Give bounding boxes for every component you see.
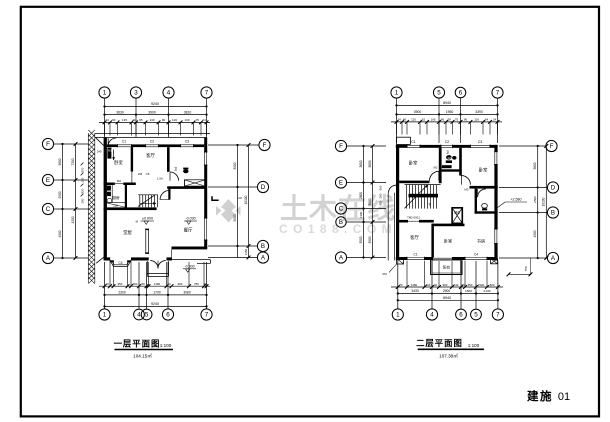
- svg-text:3900: 3900: [368, 198, 372, 205]
- svg-text:24: 24: [132, 118, 136, 122]
- svg-text:1: 1: [395, 90, 399, 97]
- svg-text:75: 75: [196, 118, 200, 122]
- svg-text:106: 106: [431, 118, 436, 122]
- svg-text:3080: 3080: [183, 291, 191, 295]
- svg-text:3390: 3390: [475, 110, 483, 114]
- svg-text:F: F: [46, 141, 50, 148]
- svg-text:F: F: [550, 143, 554, 150]
- svg-text:3810: 3810: [184, 110, 192, 114]
- svg-text:24: 24: [106, 118, 110, 122]
- svg-text:1: 1: [103, 312, 107, 319]
- svg-text:130: 130: [149, 118, 154, 122]
- svg-text:堂屋: 堂屋: [123, 229, 132, 236]
- svg-text:640: 640: [454, 283, 459, 287]
- svg-text:5: 5: [437, 90, 441, 97]
- svg-text:24: 24: [398, 118, 402, 122]
- svg-text:2300: 2300: [118, 291, 126, 295]
- svg-text:1300: 1300: [359, 211, 363, 218]
- svg-text:280: 280: [81, 198, 85, 203]
- svg-text:4: 4: [137, 312, 141, 319]
- svg-text:4: 4: [430, 312, 434, 319]
- svg-text:90: 90: [112, 118, 116, 122]
- svg-text:5: 5: [474, 312, 478, 319]
- svg-text:-0.030: -0.030: [185, 217, 195, 221]
- svg-text:M2: M2: [434, 166, 438, 170]
- svg-text:7200: 7200: [71, 158, 75, 165]
- svg-text:280: 280: [81, 177, 85, 182]
- svg-text:280: 280: [379, 193, 383, 198]
- svg-text:4900: 4900: [58, 230, 62, 237]
- svg-text:90: 90: [464, 118, 468, 122]
- svg-text:B: B: [551, 210, 555, 217]
- svg-text:70: 70: [455, 118, 459, 122]
- svg-text:烟道: 烟道: [454, 211, 460, 215]
- svg-text:460: 460: [426, 283, 431, 287]
- svg-text:C1: C1: [411, 140, 415, 144]
- svg-text:24: 24: [202, 118, 206, 122]
- svg-text:卧室: 卧室: [114, 159, 123, 166]
- svg-text:E: E: [339, 180, 343, 187]
- svg-text:900: 900: [443, 283, 448, 287]
- svg-text:2900: 2900: [443, 289, 451, 293]
- svg-text:1.5A: 1.5A: [157, 176, 163, 180]
- svg-text:餐厅: 餐厅: [184, 227, 193, 234]
- svg-text:3900: 3900: [414, 110, 422, 114]
- svg-text:750: 750: [524, 266, 528, 271]
- svg-text:95: 95: [139, 118, 143, 122]
- svg-text:26: 26: [461, 283, 465, 287]
- svg-text:阳台: 阳台: [443, 265, 451, 270]
- svg-text:3600: 3600: [359, 160, 363, 167]
- svg-text:M3: M3: [465, 188, 469, 192]
- svg-text:9240: 9240: [151, 302, 159, 306]
- svg-text:C2: C2: [445, 140, 449, 144]
- svg-text:3: 3: [134, 90, 138, 97]
- svg-text:3600: 3600: [368, 160, 372, 167]
- svg-text:750: 750: [194, 282, 199, 286]
- svg-text:F: F: [339, 143, 343, 150]
- svg-text:650: 650: [468, 283, 473, 287]
- svg-text:900: 900: [379, 185, 383, 190]
- svg-text:C8: C8: [238, 196, 242, 200]
- svg-text:1150: 1150: [244, 248, 248, 255]
- svg-text:62: 62: [422, 118, 426, 122]
- svg-text:M2: M2: [117, 179, 121, 183]
- svg-text:C1: C1: [122, 140, 126, 144]
- svg-text:2M: 2M: [382, 272, 387, 276]
- svg-text:1:100: 1:100: [468, 343, 480, 348]
- svg-text:M1: M1: [108, 149, 112, 153]
- svg-text:一层平面图: 一层平面图: [114, 338, 161, 348]
- svg-text:B: B: [339, 219, 343, 226]
- svg-text:卧室: 卧室: [409, 160, 418, 167]
- svg-text:书房: 书房: [477, 238, 485, 245]
- svg-text:7: 7: [205, 312, 209, 319]
- svg-text:9240: 9240: [151, 102, 159, 106]
- svg-text:90: 90: [162, 118, 166, 122]
- svg-text:66: 66: [441, 118, 445, 122]
- svg-text:3630: 3630: [116, 110, 124, 114]
- svg-text:10100: 10100: [542, 197, 546, 206]
- svg-text:C: C: [46, 206, 51, 213]
- svg-text:4: 4: [167, 90, 171, 97]
- svg-text:6: 6: [459, 90, 463, 97]
- svg-text:C4: C4: [118, 261, 122, 265]
- svg-text:70: 70: [106, 282, 110, 286]
- svg-text:64: 64: [485, 118, 489, 122]
- svg-text:卧室: 卧室: [444, 238, 452, 245]
- svg-text:6: 6: [166, 312, 170, 319]
- svg-text:C1: C1: [413, 252, 417, 256]
- svg-text:C4: C4: [474, 252, 478, 256]
- svg-text:+2.580: +2.580: [510, 198, 521, 202]
- svg-text:3W: 3W: [447, 156, 452, 160]
- svg-text:C: C: [339, 206, 344, 213]
- svg-text:40: 40: [434, 283, 438, 287]
- svg-text:3430: 3430: [411, 289, 419, 293]
- svg-text:2900: 2900: [58, 191, 62, 198]
- svg-text:7: 7: [496, 312, 500, 319]
- svg-text:C5: C5: [146, 172, 150, 176]
- svg-text:950: 950: [81, 167, 85, 172]
- svg-text:950: 950: [81, 188, 85, 193]
- svg-text:客厅: 客厅: [146, 152, 155, 159]
- svg-text:24: 24: [493, 118, 497, 122]
- svg-text:8940: 8940: [443, 101, 451, 105]
- svg-text:TM2-0921: TM2-0921: [407, 216, 420, 220]
- svg-text:C2: C2: [150, 140, 154, 144]
- svg-text:1: 1: [396, 312, 400, 319]
- svg-text:E: E: [46, 177, 50, 184]
- svg-text:厨房: 厨房: [112, 195, 120, 200]
- svg-text:104.15㎡: 104.15㎡: [133, 353, 152, 359]
- svg-text:120: 120: [172, 118, 177, 122]
- svg-text:建施: 建施: [527, 389, 553, 403]
- svg-text:3500: 3500: [359, 236, 363, 243]
- svg-text:3900: 3900: [148, 110, 156, 114]
- svg-text:B: B: [261, 243, 265, 250]
- svg-text:5900: 5900: [233, 214, 237, 221]
- svg-text:卧室: 卧室: [479, 167, 488, 174]
- svg-text:240: 240: [97, 150, 102, 154]
- svg-text:1: 1: [103, 90, 107, 97]
- svg-text:7: 7: [496, 90, 500, 97]
- svg-text:3600: 3600: [533, 162, 537, 169]
- svg-text:4500: 4500: [533, 230, 537, 237]
- svg-text:C3: C3: [478, 140, 482, 144]
- svg-text:二层平面图: 二层平面图: [416, 338, 463, 348]
- svg-text:46: 46: [403, 118, 407, 122]
- svg-text:950: 950: [379, 200, 383, 205]
- svg-text:1180: 1180: [411, 283, 418, 287]
- svg-text:80: 80: [141, 282, 145, 286]
- svg-text:2500: 2500: [533, 196, 537, 203]
- svg-text:2M: 2M: [138, 172, 143, 176]
- svg-text:10100: 10100: [244, 195, 248, 204]
- svg-text:F: F: [263, 142, 267, 149]
- svg-text:130: 130: [184, 118, 189, 122]
- svg-text:1500: 1500: [465, 289, 472, 293]
- svg-text:1950: 1950: [446, 110, 454, 114]
- svg-text:950: 950: [118, 282, 123, 286]
- svg-text:1:100: 1:100: [160, 343, 172, 348]
- svg-text:D: D: [551, 185, 556, 192]
- svg-text:1700: 1700: [153, 291, 161, 295]
- svg-text:3600: 3600: [58, 158, 62, 165]
- svg-text:900: 900: [178, 282, 183, 286]
- svg-text:7: 7: [205, 90, 209, 97]
- svg-text:260: 260: [133, 282, 138, 286]
- svg-text:120: 120: [411, 118, 416, 122]
- svg-text:±0.000: ±0.000: [142, 217, 153, 221]
- svg-text:C3: C3: [185, 140, 189, 144]
- svg-text:2600: 2600: [359, 192, 363, 199]
- svg-text:58: 58: [448, 118, 452, 122]
- svg-text:卫: 卫: [174, 167, 178, 171]
- svg-text:150: 150: [113, 203, 118, 207]
- svg-text:70: 70: [399, 283, 403, 287]
- svg-text:820: 820: [490, 283, 495, 287]
- svg-text:下: 下: [428, 203, 431, 207]
- svg-text:116: 116: [474, 118, 479, 122]
- svg-text:客厅: 客厅: [410, 234, 419, 241]
- svg-text:4200: 4200: [71, 216, 75, 223]
- svg-text:107.38㎡: 107.38㎡: [439, 353, 458, 359]
- svg-text:D: D: [261, 184, 266, 191]
- svg-text:5: 5: [145, 312, 149, 319]
- svg-text:-0.300: -0.300: [184, 264, 194, 268]
- svg-text:3900: 3900: [233, 162, 237, 169]
- svg-text:135: 135: [122, 118, 127, 122]
- svg-text:3500: 3500: [368, 236, 372, 243]
- svg-text:2130: 2130: [484, 289, 491, 293]
- svg-text:01: 01: [558, 391, 570, 403]
- svg-text:8940: 8940: [443, 296, 451, 300]
- svg-text:1180: 1180: [154, 282, 161, 286]
- svg-text:6: 6: [459, 312, 463, 319]
- svg-text:1500: 1500: [478, 283, 485, 287]
